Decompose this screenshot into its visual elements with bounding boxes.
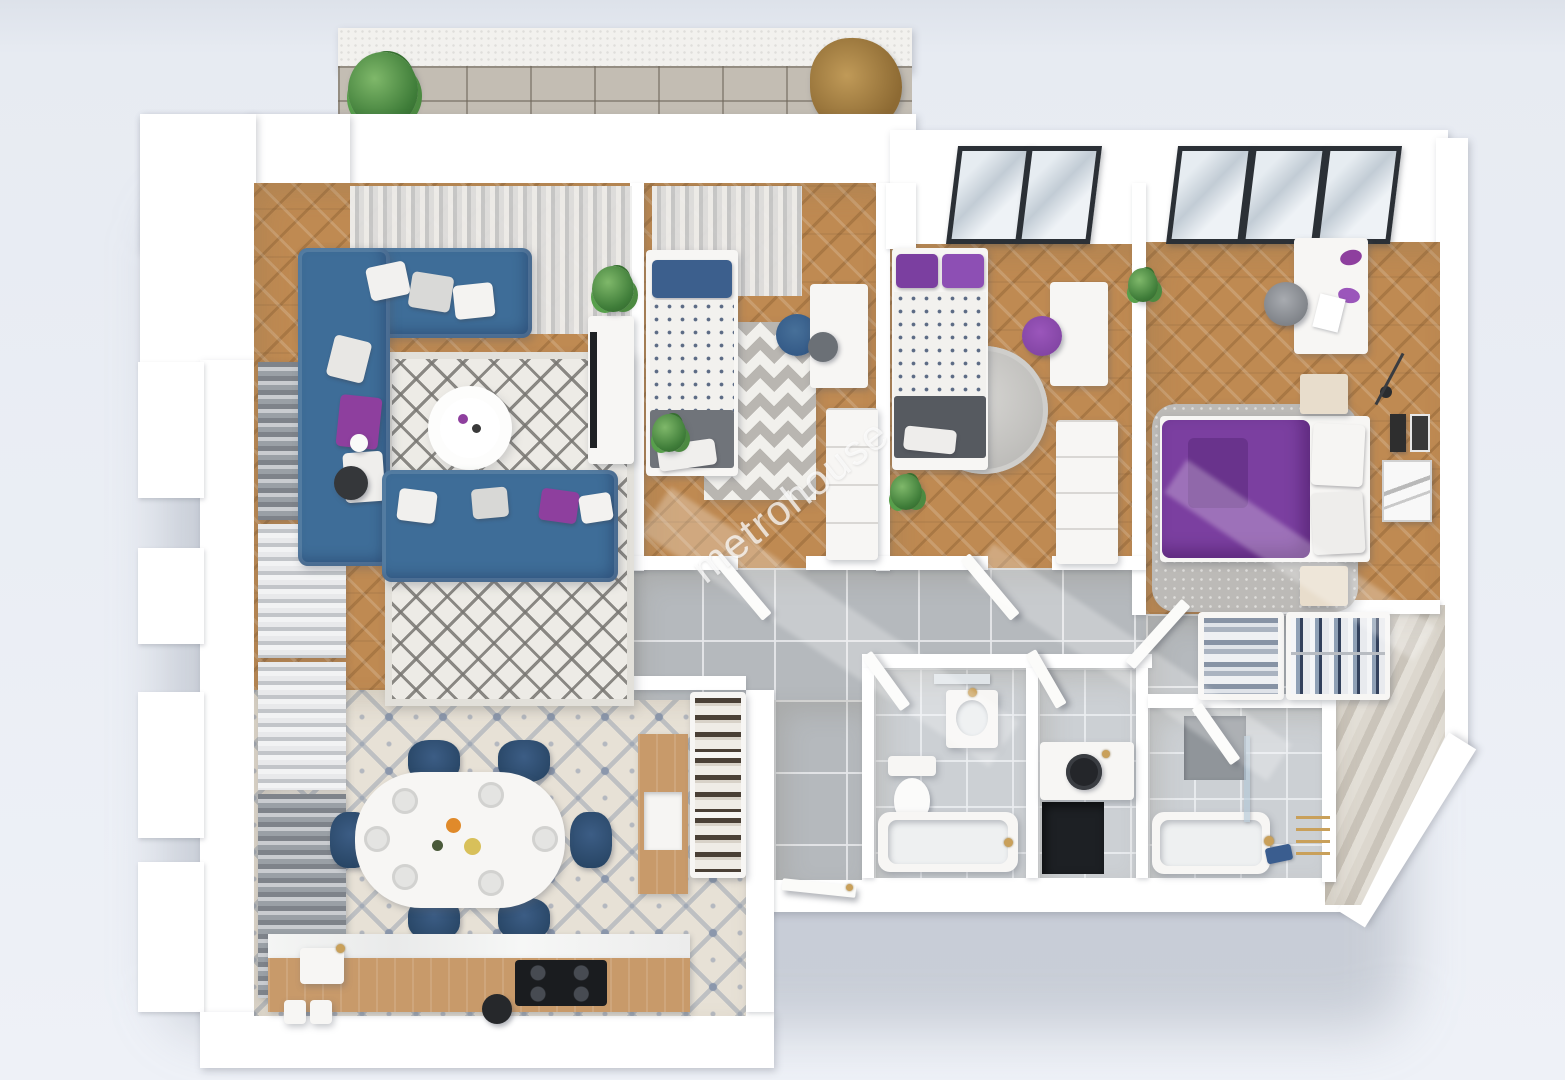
toilet-tank (888, 756, 936, 776)
bath-small-tub-basin (888, 820, 1008, 864)
closet-hanging-clothes (1291, 618, 1385, 694)
wall-patch-bedroom2 (886, 183, 916, 249)
wall-art-2 (1410, 414, 1430, 452)
sofa2-pillow-white-2 (578, 492, 614, 525)
plate-5 (364, 826, 390, 852)
bedroom2-plant (890, 474, 922, 510)
cooktop (515, 960, 607, 1006)
hallway-floor-vertical (774, 700, 862, 880)
shower-glass-screen (1244, 736, 1250, 822)
coffee-table (440, 398, 500, 458)
bedroom2-wardrobe (1056, 420, 1118, 564)
bed2-duvet (894, 292, 986, 396)
master-pillow-1 (1310, 423, 1365, 488)
wall-art-3 (1382, 460, 1432, 522)
plate-1 (392, 788, 418, 814)
master-plant (1128, 268, 1158, 302)
coffee-table-decor-2 (472, 424, 481, 433)
front-door-handle (846, 884, 853, 891)
table-decor-yellow (464, 838, 481, 855)
table-decor-orange (446, 818, 461, 833)
plate-4 (478, 870, 504, 896)
kitchen-faucet (336, 944, 345, 953)
kitchen-canister-1 (284, 1000, 306, 1024)
skylight-window-5 (1314, 146, 1402, 244)
kitchen-stool (482, 994, 512, 1024)
wall-left (200, 360, 256, 1016)
sofa2-pillow-white-1 (396, 488, 438, 524)
kitchen-sink (300, 948, 344, 984)
bath-small-tub-faucet (1004, 838, 1013, 847)
sofa2-pillow-purple (538, 488, 580, 525)
bed2-pillow-purple-1 (896, 254, 938, 288)
bath-small-basin (956, 700, 988, 736)
sofa-pillow-white-2 (452, 282, 495, 320)
wall-bath-left (862, 668, 874, 878)
bedroom2-chair-purple (1022, 316, 1062, 356)
wine-rack-section-1 (695, 698, 741, 752)
master-pillow-2 (1310, 491, 1365, 556)
dining-chair-6 (570, 812, 612, 868)
bath-main-faucet (1264, 836, 1274, 846)
side-table-black (334, 466, 368, 500)
kitchen-canister-2 (310, 1000, 332, 1024)
plate-3 (392, 864, 418, 890)
towel-ladder-gold (1296, 816, 1330, 860)
wall-bath-mid-1 (1026, 668, 1038, 878)
window-sill-1 (138, 362, 204, 498)
coffee-table-decor-1 (458, 414, 468, 424)
wall-kitchen-nook (634, 676, 746, 690)
plate-2 (478, 782, 504, 808)
wc-faucet (1102, 750, 1110, 758)
sofa2-pillow-grey (471, 486, 509, 519)
bedroom1-plant (652, 414, 686, 452)
plate-6 (532, 826, 558, 852)
floor-plan-stage: metrohouse (0, 0, 1565, 1080)
table-decor-green (432, 840, 443, 851)
left-window-blind-3 (258, 662, 346, 790)
master-desk-chair (1264, 282, 1308, 326)
wc-dark-doorway (1042, 802, 1104, 874)
wall-bath-mid-2 (1136, 668, 1148, 878)
bedroom1-desk-chair (808, 332, 838, 362)
bath-small-faucet (968, 688, 977, 697)
master-duvet-fold (1188, 438, 1248, 508)
nightstand-bottom (1300, 566, 1348, 606)
wc-vessel-basin (1066, 754, 1102, 790)
nightstand-top (1300, 374, 1348, 414)
wall-art-1 (1390, 414, 1406, 452)
window-sill-2 (138, 548, 204, 644)
bath-small-mirror (934, 674, 990, 684)
window-sill-4 (138, 862, 204, 1012)
bath-main-tub-basin (1160, 820, 1262, 866)
window-sill-3 (138, 692, 204, 838)
wall-bedroom2-master (1132, 183, 1146, 615)
tv-screen (590, 332, 597, 448)
wall-kitchen-right (746, 690, 774, 1012)
skylight-window-2 (1016, 146, 1102, 244)
wall-bath-north (862, 654, 1152, 668)
sofa-pillow-grey-1 (407, 271, 454, 313)
wine-rack-section-3 (695, 818, 741, 872)
pantry-niche (644, 792, 682, 850)
living-plant (592, 266, 634, 312)
wine-rack-section-2 (695, 758, 741, 812)
wall-left-upper (140, 114, 256, 364)
closet-folded-clothes (1204, 618, 1278, 694)
bed1-pillow-blue (652, 260, 732, 298)
bed1-duvet (650, 300, 734, 412)
closet-rail (1291, 652, 1385, 655)
bed2-pillow-purple-2 (942, 254, 984, 288)
floor-lamp-living (350, 434, 368, 452)
